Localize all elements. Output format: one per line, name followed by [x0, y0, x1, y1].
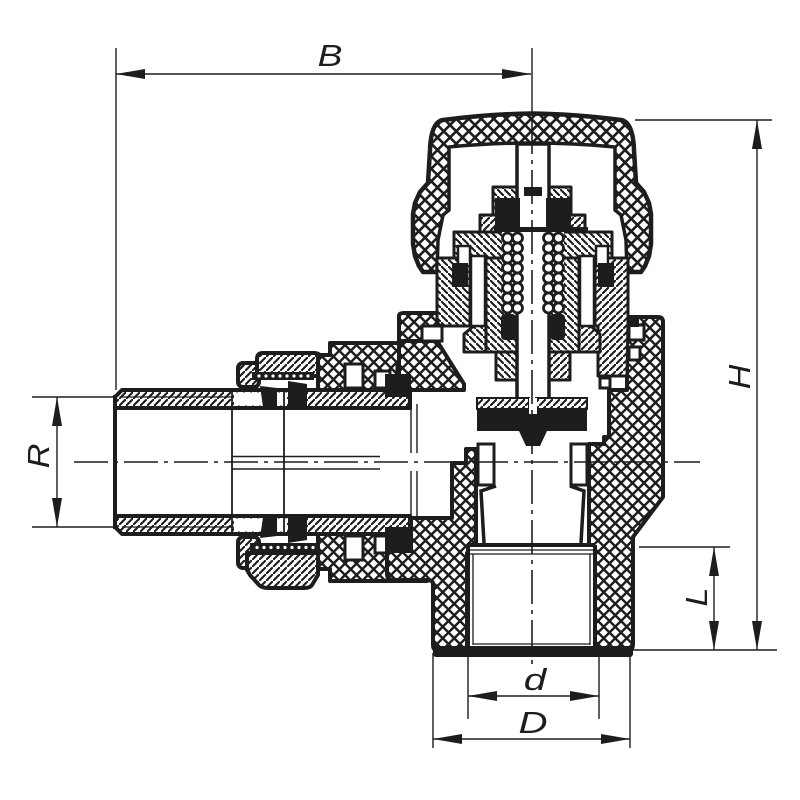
svg-text:R: R: [21, 444, 55, 469]
svg-text:L: L: [679, 588, 713, 607]
svg-text:d: d: [524, 662, 548, 697]
svg-text:B: B: [318, 39, 343, 73]
svg-text:H: H: [722, 364, 756, 389]
svg-text:D: D: [518, 705, 547, 740]
